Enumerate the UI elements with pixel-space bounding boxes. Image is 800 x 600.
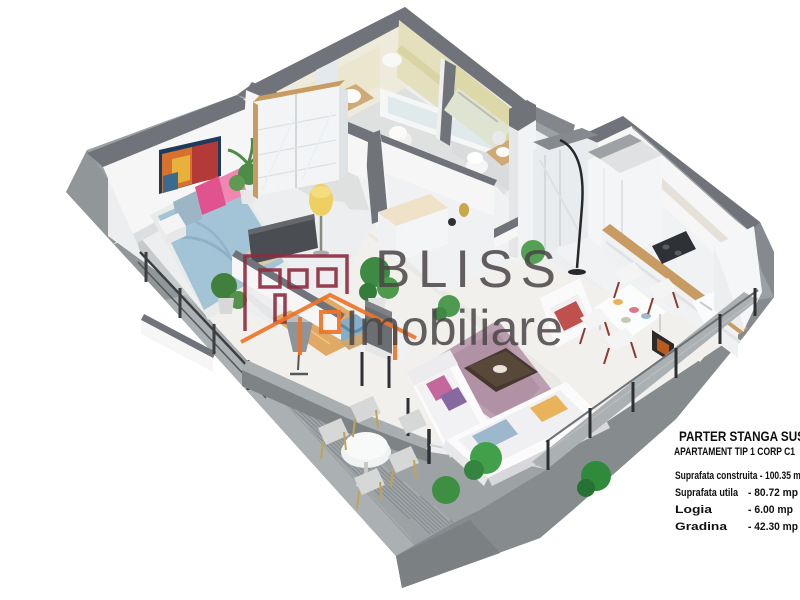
svg-text:Suprafata utila: Suprafata utila <box>675 487 739 499</box>
svg-text:- 42.30 mp: - 42.30 mp <box>748 521 798 533</box>
svg-text:APARTAMENT TIP 1 CORP C1: APARTAMENT TIP 1 CORP C1 <box>674 446 795 458</box>
svg-text:BLISS: BLISS <box>375 240 556 299</box>
svg-text:PARTER STANGA SUS: PARTER STANGA SUS <box>679 428 800 444</box>
svg-text:- 80.72 mp: - 80.72 mp <box>748 487 798 499</box>
svg-text:Suprafata construita - 100.35: Suprafata construita - 100.35 mp <box>675 470 800 482</box>
svg-text:- 6.00 mp: - 6.00 mp <box>748 504 793 516</box>
svg-text:Gradina: Gradina <box>675 521 728 533</box>
svg-text:Logia: Logia <box>675 504 713 516</box>
svg-text:Imobiliare: Imobiliare <box>345 300 563 356</box>
